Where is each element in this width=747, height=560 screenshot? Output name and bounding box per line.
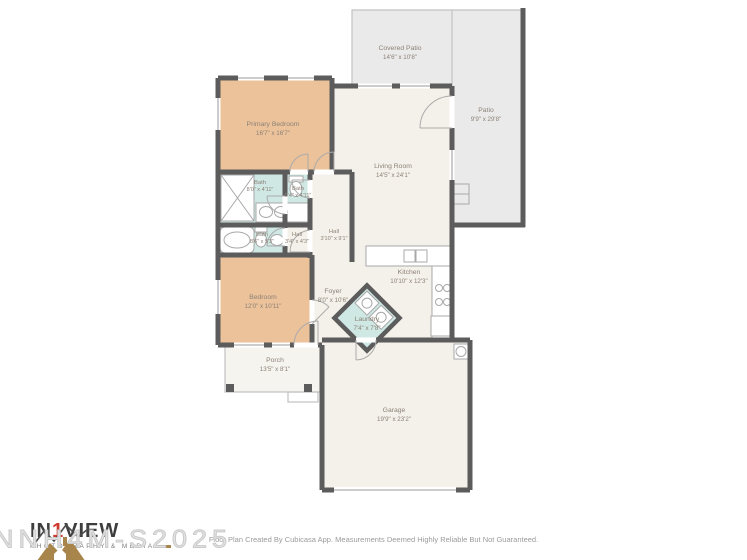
patio-door-gap bbox=[450, 96, 455, 128]
door-gap bbox=[314, 170, 334, 175]
room-dims-bath2: 5'4" x 4'11" bbox=[285, 193, 312, 199]
room-dims-covered-patio: 14'6" x 10'8" bbox=[383, 54, 417, 61]
kitchen-counter bbox=[366, 246, 452, 266]
porch-post bbox=[226, 384, 234, 392]
room-dims-garage: 19'9" x 23'2" bbox=[377, 416, 411, 423]
room-dims-bath3: 8'6" x 5'3" bbox=[250, 239, 274, 245]
room-dims-primary-bedroom: 16'7" x 16'7" bbox=[256, 130, 290, 137]
room-label-primary-bedroom: Primary Bedroom bbox=[247, 121, 300, 128]
garage-door-gap bbox=[356, 338, 376, 343]
door-gap bbox=[290, 170, 308, 175]
door-gap bbox=[310, 300, 315, 324]
room-label-living-room: Living Room bbox=[374, 163, 412, 170]
room-label-covered-patio: Covered Patio bbox=[378, 45, 421, 52]
watermark-text: NNH4M-S2025 bbox=[0, 525, 232, 554]
room-label-bedroom: Bedroom bbox=[249, 294, 277, 301]
room-dims-foyer: 8'0" x 10'6" bbox=[318, 297, 349, 304]
room-dims-bath1: 8'0" x 4'11" bbox=[247, 187, 274, 193]
room-dims-porch: 13'5" x 8'1" bbox=[260, 366, 291, 373]
fridge-fixture bbox=[431, 316, 452, 336]
floor-plan-canvas: Covered Patio 14'6" x 10'8" Patio 9'9" x… bbox=[0, 0, 747, 560]
room-dims-hall-small: 3'4" x 4'3" bbox=[285, 239, 309, 245]
floor-plan-page: Covered Patio 14'6" x 10'8" Patio 9'9" x… bbox=[0, 0, 747, 560]
room-label-bath2: Bath bbox=[292, 186, 304, 192]
porch-step bbox=[288, 392, 318, 402]
room-dims-bedroom: 12'0" x 10'11" bbox=[245, 303, 282, 310]
room-dims-living-room: 14'5" x 24'1" bbox=[376, 172, 410, 179]
front-door-gap bbox=[294, 343, 318, 348]
room-label-garage: Garage bbox=[383, 407, 406, 414]
room-dims-kitchen: 10'10" x 12'3" bbox=[390, 278, 427, 285]
room-label-hall-small: Hall bbox=[292, 232, 302, 238]
room-label-bath3: Bath bbox=[256, 232, 268, 238]
room-dims-hall-large: 3'10" x 9'1" bbox=[320, 236, 347, 242]
room-label-porch: Porch bbox=[266, 357, 284, 364]
room-dims-patio: 9'9" x 29'8" bbox=[471, 116, 502, 123]
room-label-patio: Patio bbox=[478, 107, 494, 114]
room-label-hall-large: Hall bbox=[329, 229, 339, 235]
vanity-fixture bbox=[256, 203, 308, 222]
porch-post bbox=[304, 384, 312, 392]
room-label-foyer: Foyer bbox=[324, 288, 342, 295]
room-label-bath1: Bath bbox=[254, 180, 266, 186]
bathtub-fixture bbox=[220, 227, 254, 253]
room-dims-laundry: 7'4" x 7'8" bbox=[353, 325, 380, 332]
room-label-laundry: Laundry bbox=[355, 316, 380, 323]
room-label-kitchen: Kitchen bbox=[398, 269, 421, 276]
